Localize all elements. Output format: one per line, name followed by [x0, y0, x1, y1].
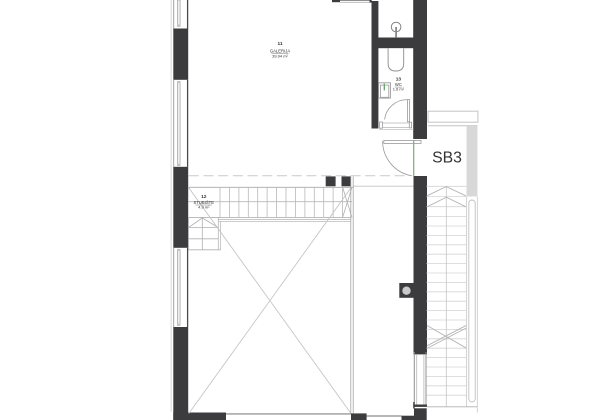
svg-text:39.94 m²: 39.94 m² — [272, 54, 288, 59]
svg-text:4.9 m²: 4.9 m² — [198, 205, 210, 210]
svg-text:SB3: SB3 — [432, 150, 462, 167]
svg-text:1.6 m²: 1.6 m² — [393, 87, 405, 92]
svg-text:11: 11 — [277, 41, 282, 47]
